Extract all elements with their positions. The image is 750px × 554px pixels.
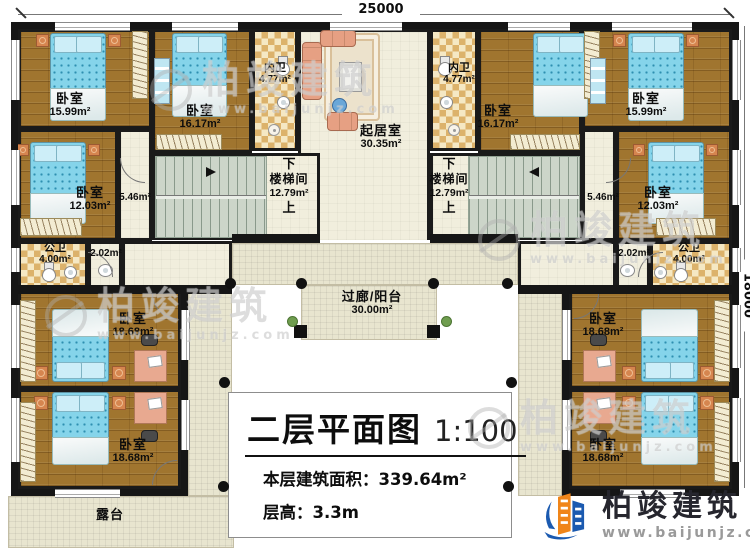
stair-down-label: 下 bbox=[420, 156, 478, 172]
room-area: 4.00m² bbox=[662, 254, 716, 265]
window bbox=[732, 398, 741, 462]
window bbox=[11, 305, 20, 368]
plan-scale: 1:100 bbox=[434, 414, 518, 448]
shelf-cabinet bbox=[590, 58, 606, 104]
room-label: 卧室 18.68m² bbox=[95, 312, 171, 338]
room-name: 卧室 bbox=[30, 92, 110, 106]
nightstand bbox=[112, 396, 126, 410]
window bbox=[732, 40, 741, 100]
room-area: 4.00m² bbox=[28, 254, 82, 265]
room-area: 18.68m² bbox=[565, 452, 641, 464]
window bbox=[55, 22, 130, 31]
logo-text: 柏竣建筑 bbox=[602, 492, 750, 522]
room-name: 楼梯间 bbox=[420, 172, 478, 187]
wardrobe bbox=[20, 402, 36, 482]
wardrobe bbox=[20, 300, 36, 382]
room-label: 卧室 16.17m² bbox=[458, 104, 538, 130]
room-area: 4.77m² bbox=[432, 74, 486, 85]
column bbox=[503, 481, 514, 492]
nightstand bbox=[613, 34, 626, 47]
room-label: 2.02m² bbox=[612, 248, 656, 259]
room-name: 内卫 bbox=[432, 62, 486, 74]
desk bbox=[134, 350, 167, 382]
room-label: 卧室 18.68m² bbox=[565, 438, 641, 464]
logo-url: www.baijunjz.com bbox=[602, 525, 750, 541]
floor-area-label: 本层建筑面积： bbox=[263, 471, 379, 489]
right-dimension-label: 18000 bbox=[741, 260, 750, 332]
room-area: 15.99m² bbox=[606, 106, 686, 118]
nightstand bbox=[622, 366, 636, 380]
column bbox=[502, 278, 513, 289]
nightstand bbox=[622, 396, 636, 410]
room-name: 露台 bbox=[70, 508, 150, 522]
column bbox=[219, 377, 230, 388]
hall-left bbox=[122, 241, 232, 290]
shelf-cabinet bbox=[154, 58, 170, 104]
room-label: 卧室 18.68m² bbox=[565, 312, 641, 338]
room-area: 18.68m² bbox=[95, 326, 171, 338]
desk bbox=[583, 392, 616, 424]
company-logo: 柏竣建筑 www.baijunjz.com bbox=[540, 488, 750, 545]
room-area: 2.02m² bbox=[84, 248, 128, 259]
nightstand bbox=[700, 366, 714, 380]
room-name: 内卫 bbox=[248, 62, 302, 74]
courtyard-strip-left bbox=[188, 290, 232, 496]
corridor-right bbox=[582, 129, 616, 241]
column bbox=[225, 278, 236, 289]
shower-head bbox=[268, 124, 280, 136]
room-label: 卧室 18.68m² bbox=[95, 438, 171, 464]
room-name: 卧室 bbox=[95, 312, 171, 326]
wardrobe bbox=[714, 300, 730, 382]
room-name: 卧室 bbox=[618, 186, 698, 200]
window bbox=[181, 310, 190, 360]
room-label: 卧室 15.99m² bbox=[606, 92, 686, 118]
floor-area-line: 本层建筑面积：339.64m² bbox=[245, 466, 511, 490]
nightstand bbox=[34, 396, 48, 410]
room-name: 楼梯间 bbox=[260, 172, 318, 187]
column bbox=[218, 481, 229, 492]
room-area: 4.77m² bbox=[248, 74, 302, 85]
wall-block-bottom-right bbox=[518, 285, 739, 294]
room-label: 公卫 4.00m² bbox=[28, 242, 82, 265]
window bbox=[11, 248, 20, 272]
wardrobe bbox=[20, 218, 82, 236]
beanbag bbox=[332, 98, 347, 113]
window bbox=[11, 398, 20, 462]
bed bbox=[641, 392, 698, 465]
top-dimension-label: 25000 bbox=[342, 2, 420, 17]
nightstand bbox=[633, 144, 645, 156]
room-label: 内卫 4.77m² bbox=[432, 62, 486, 85]
sofa bbox=[302, 42, 322, 100]
room-name: 过廊/阳台 bbox=[324, 290, 420, 304]
window bbox=[732, 248, 741, 272]
room-area: 30.00m² bbox=[324, 304, 420, 316]
stair-up-label: 上 bbox=[260, 200, 318, 216]
logo-text-group: 柏竣建筑 www.baijunjz.com bbox=[602, 492, 750, 541]
wall-balcony-top-left bbox=[232, 234, 320, 243]
window bbox=[181, 400, 190, 450]
room-name: 卧室 bbox=[606, 92, 686, 106]
window bbox=[11, 40, 20, 100]
room-area: 12.79m² bbox=[260, 187, 318, 200]
room-label: 卧室 16.17m² bbox=[160, 104, 240, 130]
sink bbox=[440, 96, 453, 109]
dimension-tick bbox=[15, 7, 26, 18]
window bbox=[612, 22, 692, 31]
room-area: 5.46m² bbox=[110, 192, 160, 203]
nightstand bbox=[36, 34, 49, 47]
room-name: 起居室 bbox=[338, 124, 424, 138]
plant bbox=[441, 316, 452, 327]
window bbox=[55, 489, 120, 498]
room-area: 18.68m² bbox=[565, 326, 641, 338]
wall-block-bottom-left bbox=[11, 285, 232, 294]
stairwell-label: 下 楼梯间 12.79m² 上 bbox=[420, 156, 478, 217]
stair-direction-arrow bbox=[206, 167, 221, 177]
armchair bbox=[320, 30, 356, 47]
room-label: 过廊/阳台 30.00m² bbox=[324, 290, 420, 316]
right-dimension-line bbox=[744, 26, 745, 488]
nightstand bbox=[34, 366, 48, 380]
plan-title-row: 二层平面图1:100 bbox=[245, 403, 526, 457]
wardrobe bbox=[656, 218, 716, 236]
wardrobe bbox=[714, 402, 730, 482]
floor-height-value: 3.3m bbox=[313, 503, 359, 522]
title-block: 二层平面图1:100 本层建筑面积：339.64m² 层高：3.3m bbox=[228, 392, 512, 538]
window bbox=[11, 150, 20, 205]
room-area: 2.02m² bbox=[612, 248, 656, 259]
room-name: 卧室 bbox=[160, 104, 240, 118]
nightstand bbox=[686, 34, 699, 47]
room-area: 16.17m² bbox=[458, 118, 538, 130]
nightstand bbox=[700, 396, 714, 410]
nightstand bbox=[706, 144, 718, 156]
wall-balcony-top-right bbox=[430, 234, 518, 243]
window bbox=[732, 150, 741, 205]
sink bbox=[64, 266, 77, 279]
room-name: 公卫 bbox=[28, 242, 82, 254]
room-label: 起居室 30.35m² bbox=[338, 124, 424, 150]
room-label: 露台 bbox=[70, 508, 150, 522]
room-area: 18.68m² bbox=[95, 452, 171, 464]
window bbox=[732, 305, 741, 368]
desk bbox=[583, 350, 616, 382]
dimension-tick bbox=[723, 7, 734, 18]
floor-area-value: 339.64m² bbox=[379, 470, 467, 489]
room-name: 卧室 bbox=[565, 312, 641, 326]
floor-height-label: 层高： bbox=[263, 504, 313, 522]
balcony-corridor bbox=[232, 243, 518, 285]
floor-height-line: 层高：3.3m bbox=[245, 499, 511, 523]
coffee-table bbox=[339, 62, 362, 92]
room-name: 卧室 bbox=[95, 438, 171, 452]
room-area: 16.17m² bbox=[160, 118, 240, 130]
column-square bbox=[427, 325, 440, 338]
logo-icon bbox=[540, 488, 594, 545]
wardrobe bbox=[510, 134, 580, 150]
window bbox=[330, 22, 402, 31]
window bbox=[172, 22, 238, 31]
nightstand bbox=[112, 366, 126, 380]
column bbox=[428, 278, 439, 289]
plant bbox=[287, 316, 298, 327]
column bbox=[296, 278, 307, 289]
room-area: 12.03m² bbox=[618, 200, 698, 212]
wardrobe bbox=[156, 134, 222, 150]
desk bbox=[134, 392, 167, 424]
room-area: 30.35m² bbox=[338, 138, 424, 150]
stair-up-label: 上 bbox=[420, 200, 478, 216]
room-label: 卧室 15.99m² bbox=[30, 92, 110, 118]
bed bbox=[641, 309, 698, 382]
room-label: 内卫 4.77m² bbox=[248, 62, 302, 85]
stairwell-label: 下 楼梯间 12.79m² 上 bbox=[260, 156, 318, 217]
nightstand bbox=[108, 34, 121, 47]
room-label: 卧室 12.03m² bbox=[618, 186, 698, 212]
window bbox=[508, 22, 570, 31]
column-square bbox=[294, 325, 307, 338]
sink bbox=[277, 96, 290, 109]
stair-down-label: 下 bbox=[260, 156, 318, 172]
room-name: 卧室 bbox=[458, 104, 538, 118]
stair-direction-arrow bbox=[524, 167, 539, 177]
bed bbox=[533, 33, 588, 117]
nightstand bbox=[88, 144, 100, 156]
room-label: 2.02m² bbox=[84, 248, 128, 259]
room-area: 15.99m² bbox=[30, 106, 110, 118]
column bbox=[506, 377, 517, 388]
room-label: 公卫 4.00m² bbox=[662, 242, 716, 265]
room-label: 5.46m² bbox=[110, 192, 160, 203]
sink bbox=[620, 264, 635, 277]
floor-plan: 25000 18000 bbox=[0, 0, 750, 554]
room-area: 12.79m² bbox=[420, 187, 478, 200]
room-name: 卧室 bbox=[565, 438, 641, 452]
courtyard-strip-right bbox=[518, 290, 562, 496]
hall-right bbox=[518, 241, 616, 290]
wardrobe bbox=[132, 31, 148, 99]
plan-title: 二层平面图 bbox=[247, 411, 422, 448]
room-name: 公卫 bbox=[662, 242, 716, 254]
corridor-left bbox=[118, 129, 152, 241]
